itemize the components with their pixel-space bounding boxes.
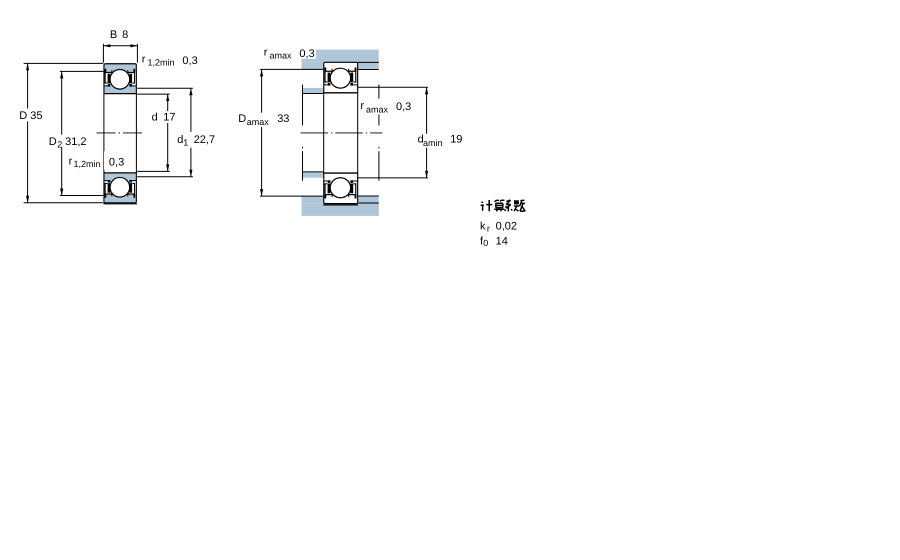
svg-text:33: 33 (277, 113, 289, 125)
svg-text:2: 2 (57, 140, 62, 150)
svg-text:0: 0 (483, 238, 488, 248)
svg-text:0,3: 0,3 (182, 55, 197, 67)
svg-text:k: k (480, 221, 486, 233)
svg-text:r: r (487, 224, 490, 234)
svg-text:d: d (152, 111, 158, 123)
svg-text:r: r (264, 47, 268, 59)
svg-text:r: r (142, 54, 146, 66)
svg-text:31,2: 31,2 (65, 136, 86, 148)
svg-text:1,2min: 1,2min (74, 159, 101, 169)
svg-text:0,3: 0,3 (299, 48, 314, 60)
svg-text:19: 19 (450, 134, 462, 146)
svg-text:B: B (110, 29, 117, 41)
svg-text:amax: amax (247, 117, 270, 127)
svg-text:D: D (238, 113, 246, 125)
svg-text:amax: amax (270, 51, 293, 61)
svg-text:0,02: 0,02 (496, 221, 517, 233)
svg-text:0,3: 0,3 (396, 101, 411, 113)
svg-text:r: r (360, 100, 364, 112)
svg-text:D 35: D 35 (19, 110, 42, 122)
svg-text:D: D (49, 136, 57, 148)
svg-text:1: 1 (183, 138, 188, 148)
svg-text:amin: amin (423, 138, 443, 148)
svg-text:r: r (69, 155, 73, 167)
svg-text:0,3: 0,3 (109, 156, 124, 168)
svg-text:amax: amax (366, 104, 389, 114)
svg-text:17: 17 (163, 111, 175, 123)
svg-text:14: 14 (496, 236, 508, 248)
svg-text:8: 8 (122, 29, 128, 41)
svg-text:22,7: 22,7 (194, 134, 215, 146)
svg-text:1,2min: 1,2min (148, 58, 175, 68)
